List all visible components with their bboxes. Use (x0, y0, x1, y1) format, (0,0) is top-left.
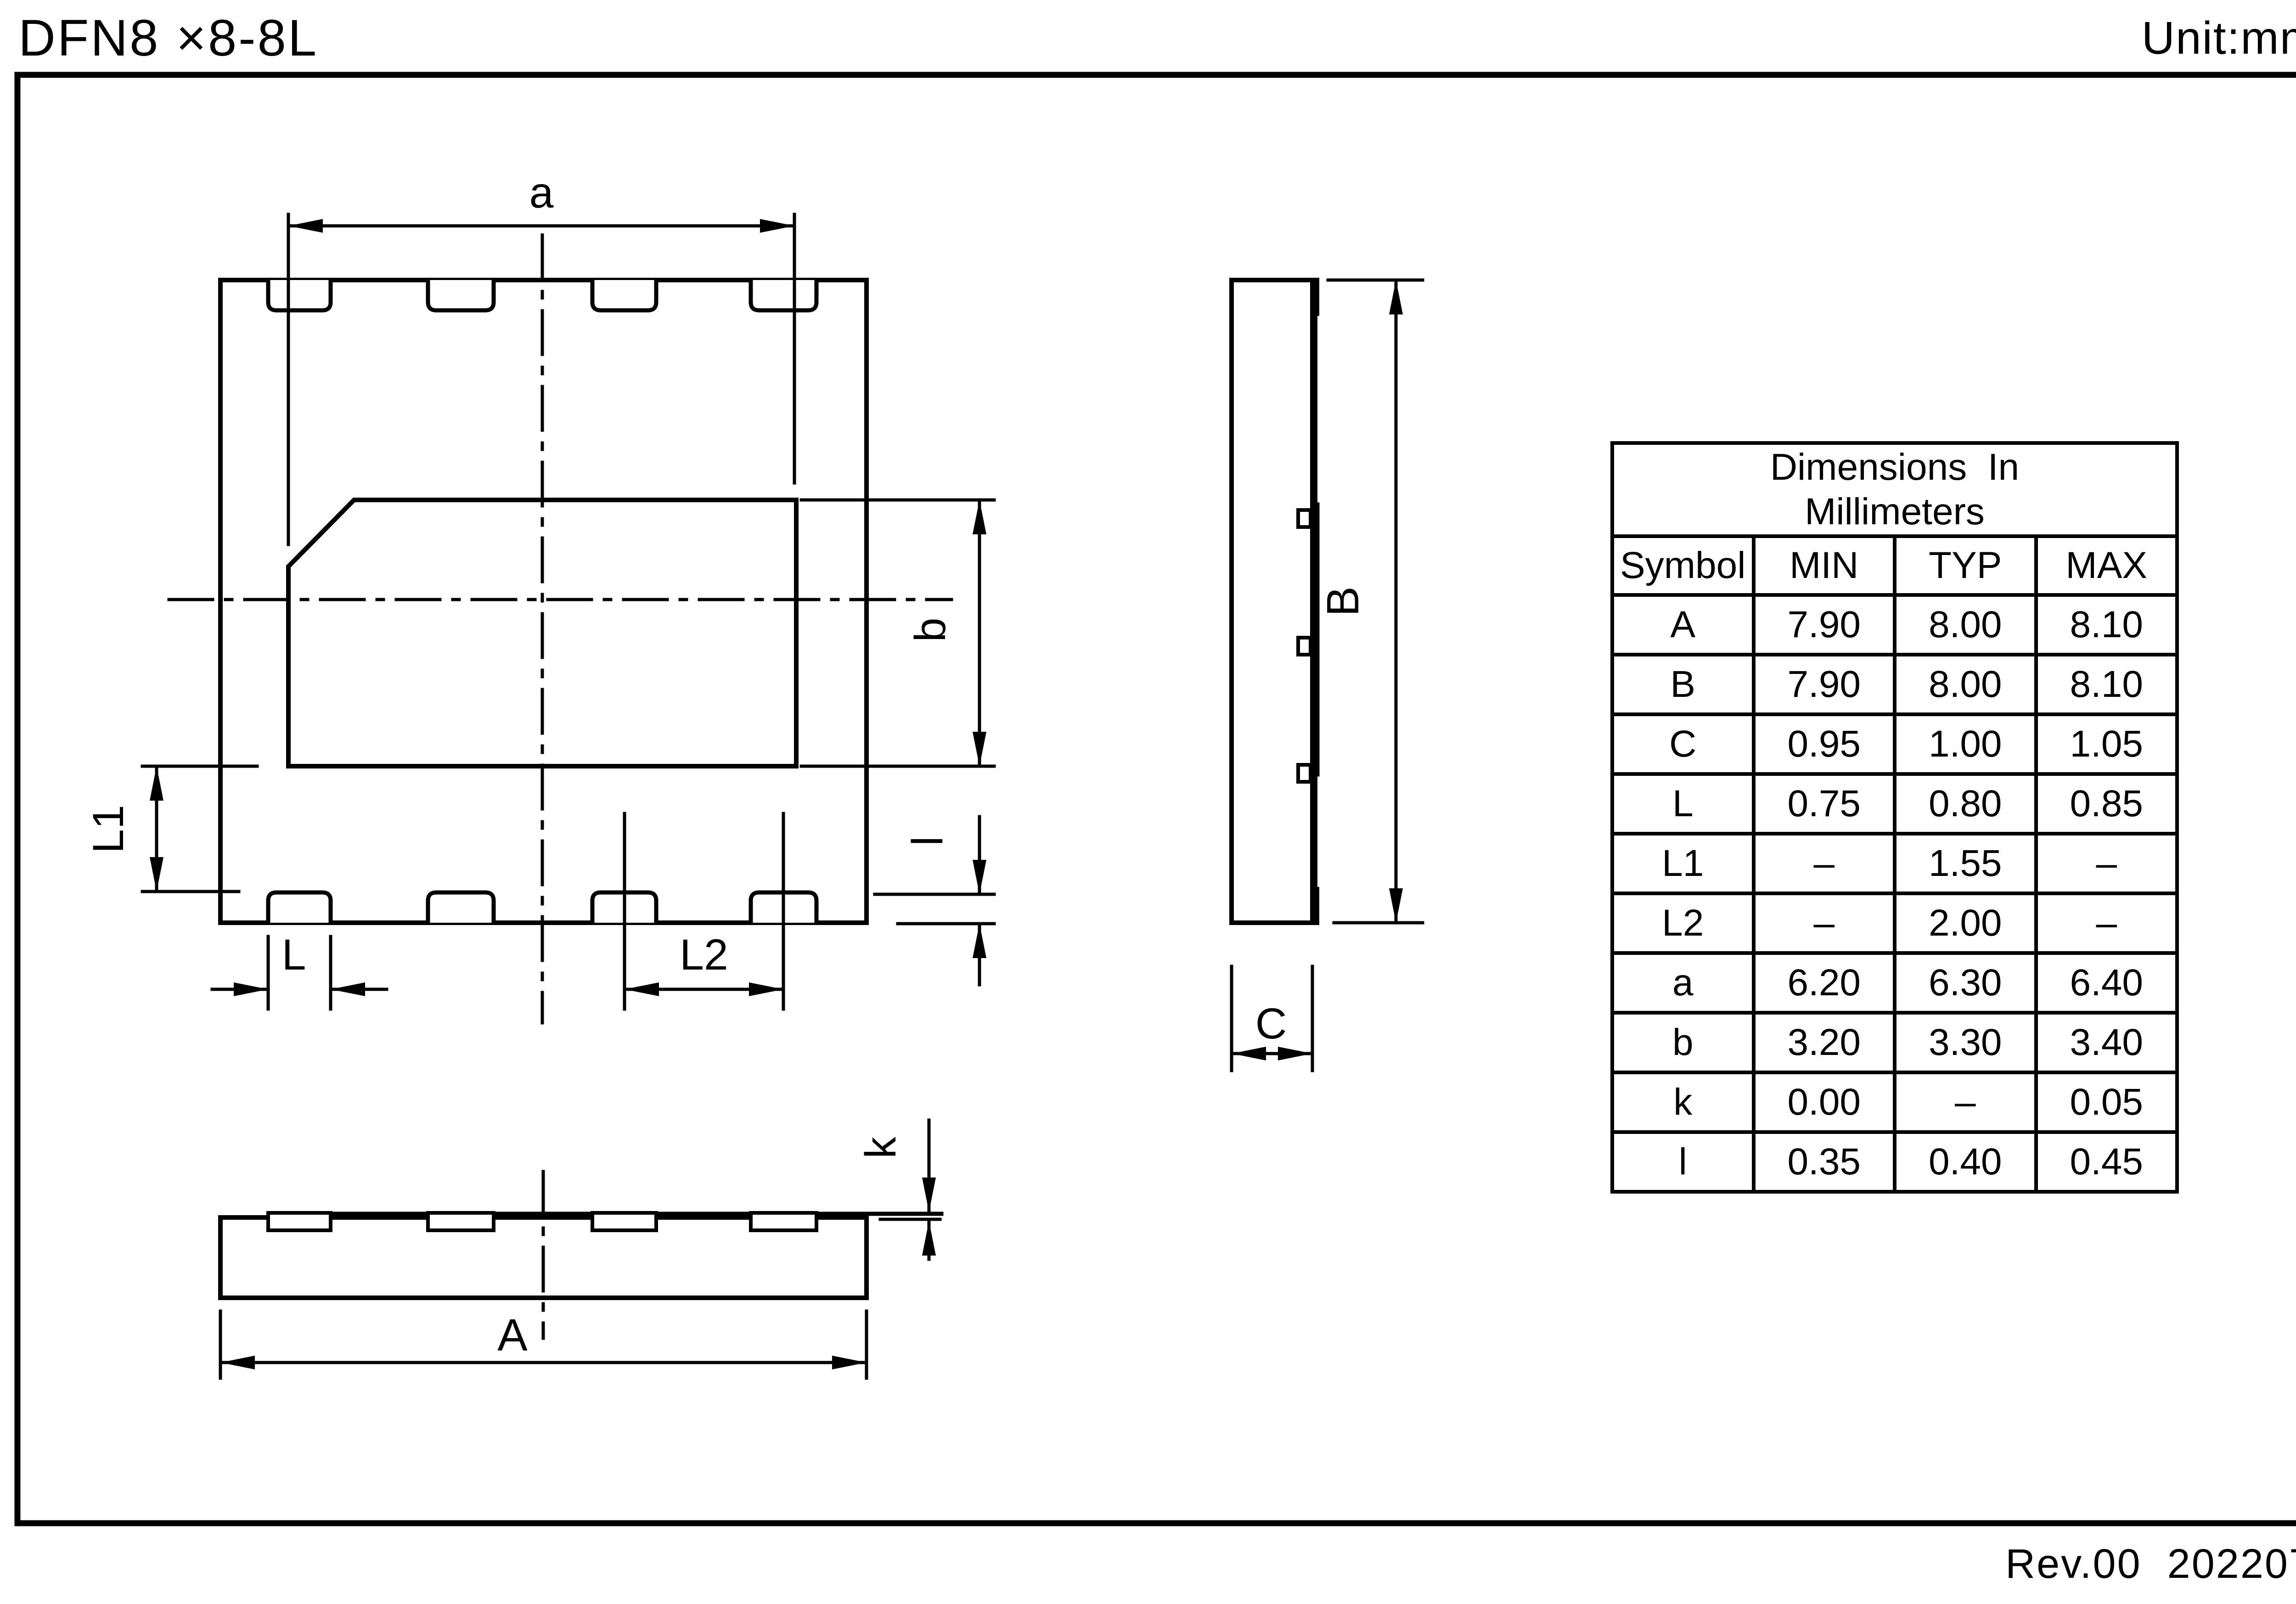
max-cell: 0.45 (2036, 1132, 2178, 1192)
pad-bump (1298, 638, 1311, 655)
dim-label-L2: L2 (680, 931, 728, 979)
table-header-row: Symbol MIN TYP MAX (1612, 536, 2177, 595)
pad (428, 1213, 494, 1230)
dim-label-L1: L1 (84, 805, 133, 853)
table-row: L2 – 2.00 – (1612, 893, 2177, 953)
column-header: MIN (1754, 536, 1895, 595)
column-header: MAX (2036, 536, 2178, 595)
side-body-outline (1232, 280, 1312, 923)
min-cell: – (1754, 893, 1895, 953)
table-title-line1: Dimensions In (1770, 446, 2019, 488)
pad (592, 1213, 656, 1230)
symbol-cell: b (1612, 1013, 1754, 1072)
dim-label-B: B (1317, 586, 1368, 616)
column-header: Symbol (1612, 536, 1754, 595)
min-cell: 7.90 (1754, 595, 1895, 655)
dimension-B: B (1317, 280, 1423, 923)
table-title-line2: Millimeters (1805, 491, 1985, 533)
dimensions-table: Dimensions InMillimeters Symbol MIN TYP … (1610, 441, 2179, 1194)
max-cell: – (2036, 893, 2178, 953)
dimension-L: L (212, 931, 387, 1009)
symbol-cell: a (1612, 953, 1754, 1013)
pad (428, 892, 494, 923)
dim-label-l: l (903, 836, 952, 846)
max-cell: 0.85 (2036, 774, 2178, 834)
symbol-cell: k (1612, 1072, 1754, 1132)
min-cell: 0.75 (1754, 774, 1895, 834)
dim-label-b: b (906, 618, 955, 642)
max-cell: 8.10 (2036, 655, 2178, 714)
min-cell: 0.00 (1754, 1072, 1895, 1132)
dim-label-C: C (1255, 999, 1287, 1048)
typ-cell: – (1895, 1072, 2036, 1132)
typ-cell: 6.30 (1895, 953, 2036, 1013)
dim-label-k: k (856, 1137, 905, 1159)
typ-cell: 8.00 (1895, 655, 2036, 714)
table-row: b 3.20 3.30 3.40 (1612, 1013, 2177, 1072)
typ-cell: 1.00 (1895, 714, 2036, 774)
table-title-row: Dimensions InMillimeters (1612, 443, 2177, 536)
min-cell: 6.20 (1754, 953, 1895, 1013)
typ-cell: 0.40 (1895, 1132, 2036, 1192)
symbol-cell: L (1612, 774, 1754, 834)
pad (751, 1213, 816, 1230)
table-row: A 7.90 8.00 8.10 (1612, 595, 2177, 655)
symbol-cell: B (1612, 655, 1754, 714)
side-leadframe-lines (1316, 281, 1317, 922)
max-cell: – (2036, 834, 2178, 893)
top-view: a b l (84, 168, 994, 1023)
typ-cell: 2.00 (1895, 893, 2036, 953)
pad-bump (1298, 510, 1311, 527)
typ-cell: 8.00 (1895, 595, 2036, 655)
symbol-cell: C (1612, 714, 1754, 774)
min-cell: 3.20 (1754, 1013, 1895, 1072)
typ-cell: 1.55 (1895, 834, 2036, 893)
symbol-cell: L1 (1612, 834, 1754, 893)
pad (751, 280, 816, 310)
dimension-k: k (856, 1120, 940, 1259)
table-row: a 6.20 6.30 6.40 (1612, 953, 2177, 1013)
max-cell: 0.05 (2036, 1072, 2178, 1132)
pad (268, 892, 331, 923)
pad-bump (1298, 765, 1311, 782)
table-row: L1 – 1.55 – (1612, 834, 2177, 893)
min-cell: 0.35 (1754, 1132, 1895, 1192)
pad (268, 280, 331, 310)
dimension-l: l (875, 817, 994, 985)
typ-cell: 3.30 (1895, 1013, 2036, 1072)
min-cell: 0.95 (1754, 714, 1895, 774)
dim-label-L: L (282, 931, 306, 979)
drawing-page: DFN8 ×8-8L Unit:mm Rev.00 202207 (0, 0, 2296, 1604)
pad (592, 280, 656, 310)
min-cell: – (1754, 834, 1895, 893)
front-view: k A (220, 1120, 941, 1378)
column-header: TYP (1895, 536, 2036, 595)
table-row: L 0.75 0.80 0.85 (1612, 774, 2177, 834)
symbol-cell: l (1612, 1132, 1754, 1192)
table-title: Dimensions InMillimeters (1612, 443, 2177, 536)
table-row: k 0.00 – 0.05 (1612, 1072, 2177, 1132)
side-view: B C (1232, 280, 1423, 1071)
pad (268, 1213, 331, 1230)
typ-cell: 0.80 (1895, 774, 2036, 834)
max-cell: 6.40 (2036, 953, 2178, 1013)
max-cell: 3.40 (2036, 1013, 2178, 1072)
dimension-C: C (1232, 966, 1312, 1071)
table-row: C 0.95 1.00 1.05 (1612, 714, 2177, 774)
table-row: B 7.90 8.00 8.10 (1612, 655, 2177, 714)
min-cell: 7.90 (1754, 655, 1895, 714)
max-cell: 8.10 (2036, 595, 2178, 655)
symbol-cell: A (1612, 595, 1754, 655)
dimension-A: A (220, 1310, 867, 1378)
pad (428, 280, 494, 310)
max-cell: 1.05 (2036, 714, 2178, 774)
dim-label-A: A (497, 1310, 528, 1360)
dim-label-a: a (529, 168, 554, 217)
symbol-cell: L2 (1612, 893, 1754, 953)
table-row: l 0.35 0.40 0.45 (1612, 1132, 2177, 1192)
